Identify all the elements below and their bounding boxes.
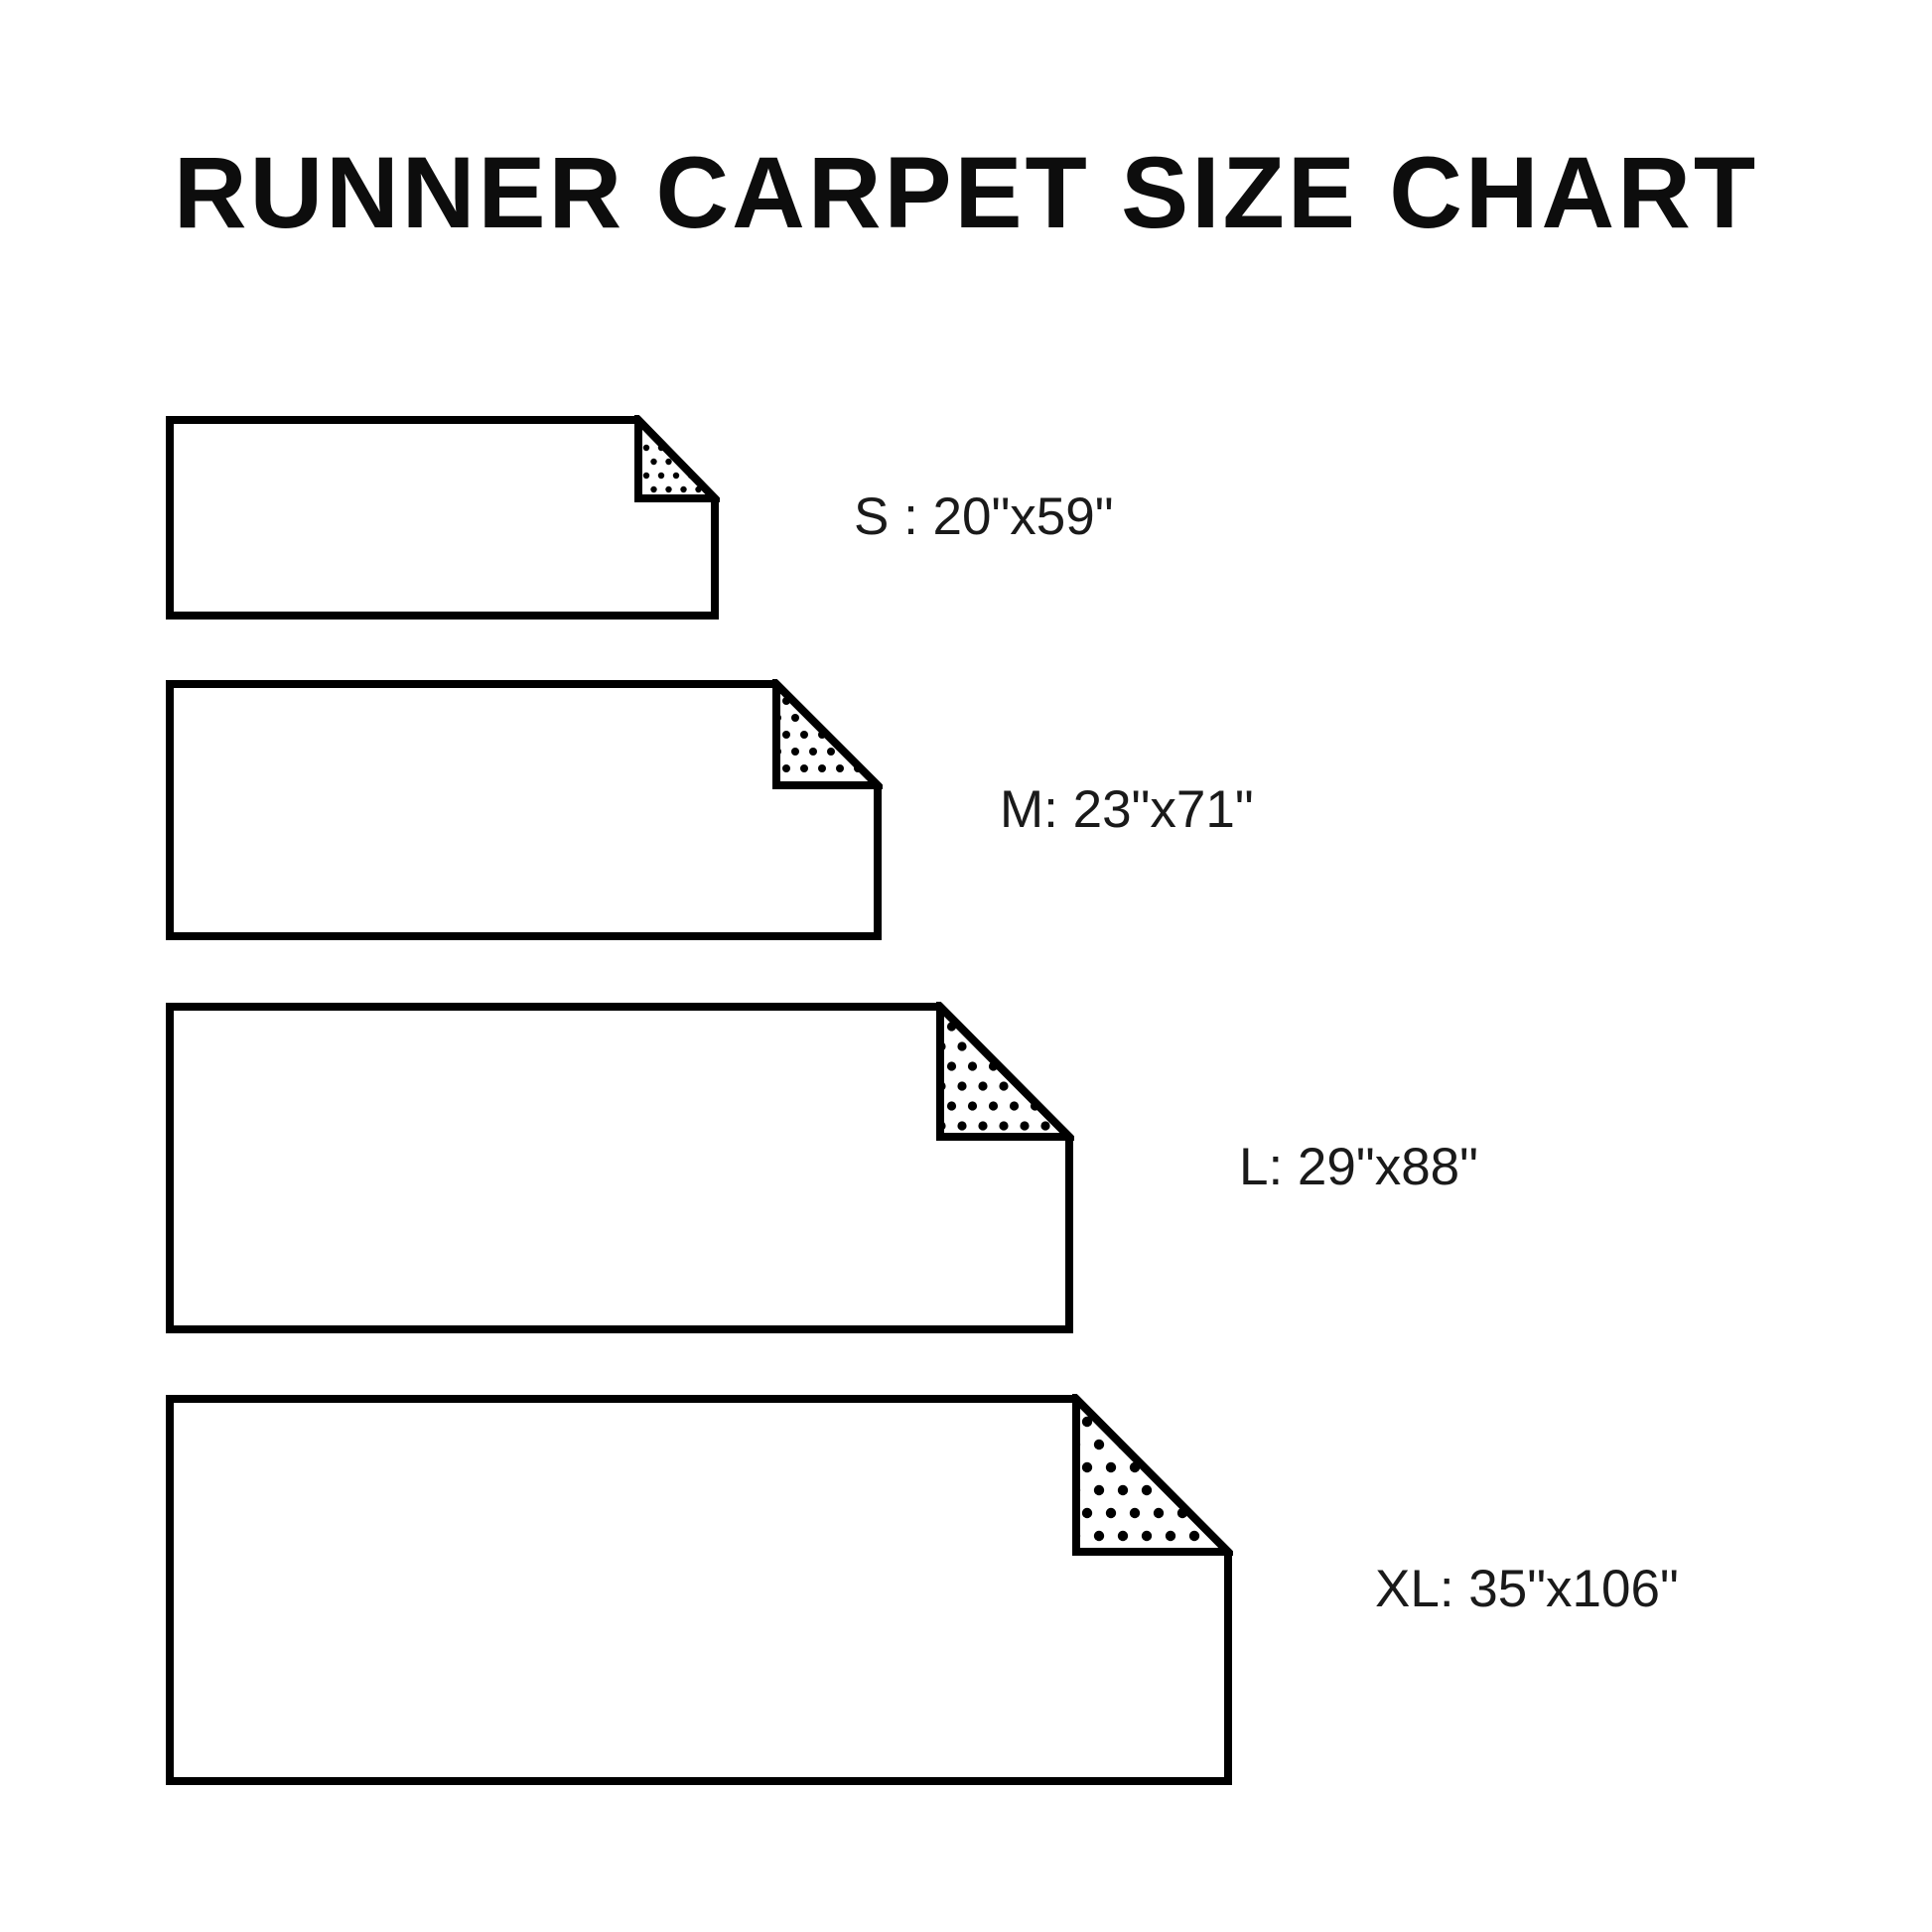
folded-corner-icon-xl bbox=[1076, 1399, 1228, 1552]
carpet-shape-l bbox=[165, 1002, 1074, 1334]
carpet-body-l bbox=[170, 1007, 1069, 1329]
carpet-shape-xl bbox=[165, 1394, 1233, 1786]
carpet-body-xl bbox=[170, 1399, 1228, 1781]
folded-corner-icon-s bbox=[638, 420, 715, 498]
carpet-diagram-l bbox=[165, 1002, 1074, 1339]
folded-corner-icon-l bbox=[940, 1007, 1069, 1137]
carpet-diagram-m bbox=[165, 679, 883, 946]
size-label-s: S : 20"x59" bbox=[854, 487, 1114, 547]
carpet-diagram-xl bbox=[165, 1394, 1233, 1791]
size-label-l: L: 29"x88" bbox=[1239, 1138, 1478, 1197]
page-title: RUNNER CARPET SIZE CHART bbox=[0, 135, 1932, 251]
carpet-shape-m bbox=[165, 679, 883, 941]
folded-corner-icon-m bbox=[776, 684, 878, 785]
carpet-body-m bbox=[170, 684, 878, 936]
size-label-xl: XL: 35"x106" bbox=[1375, 1560, 1679, 1619]
carpet-shape-s bbox=[165, 415, 720, 621]
carpet-diagram-s bbox=[165, 415, 720, 625]
runner-carpet-size-chart: RUNNER CARPET SIZE CHART S : 20"x59" bbox=[0, 0, 1932, 1932]
size-label-m: M: 23"x71" bbox=[1000, 780, 1254, 840]
carpet-body-s bbox=[170, 420, 715, 616]
